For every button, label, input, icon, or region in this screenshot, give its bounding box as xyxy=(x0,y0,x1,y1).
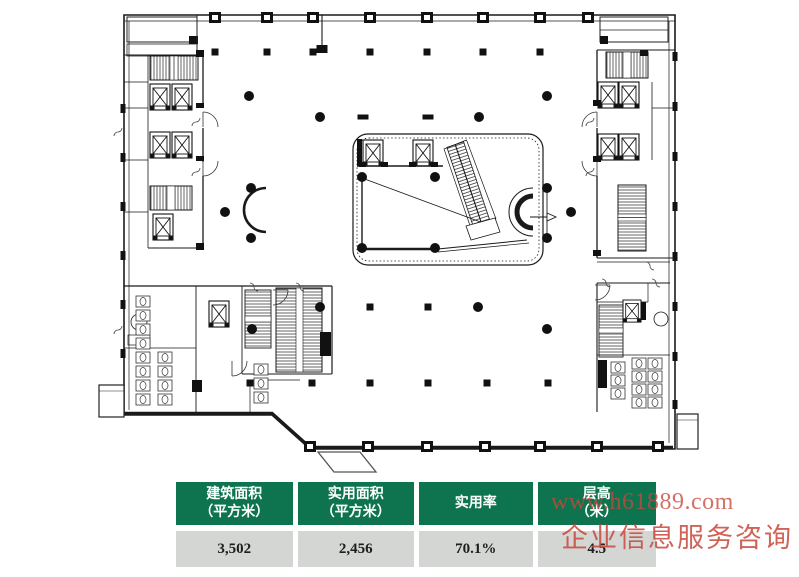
central-atrium xyxy=(353,134,556,265)
header-text: 实用率 xyxy=(455,495,497,513)
left-service-core xyxy=(114,50,266,334)
escalator-icon xyxy=(444,140,500,240)
bottom-right-core xyxy=(595,279,670,412)
header-cell-efficiency: 实用率 xyxy=(419,482,533,525)
watermark-text: 企业信息服务咨询 xyxy=(561,516,793,555)
stair-icon xyxy=(599,305,623,357)
header-text: 建筑面积 xyxy=(206,486,262,504)
header-cell-gross-area: 建筑面积 （平方米） xyxy=(176,482,293,525)
right-annex xyxy=(677,414,698,449)
elevator-icon xyxy=(623,300,641,322)
door-arc xyxy=(244,188,266,232)
elevator-icon xyxy=(209,301,229,327)
building-outline xyxy=(124,15,675,449)
elevator-icon xyxy=(150,84,192,240)
header-text: （平方米） xyxy=(321,504,391,522)
header-text: 实用面积 xyxy=(328,486,384,504)
value-gross-area: 3,502 xyxy=(176,531,293,567)
stair-icon xyxy=(150,56,198,80)
left-annex xyxy=(99,385,124,417)
right-service-core xyxy=(582,50,675,270)
toilet-stalls xyxy=(611,358,662,408)
entrance-canopy xyxy=(318,452,376,472)
elevator-icon xyxy=(363,140,433,166)
watermark-url: www.h61889.com xyxy=(551,489,734,516)
perimeter-columns xyxy=(121,12,678,452)
value-efficiency: 70.1% xyxy=(419,531,533,567)
stair-icon xyxy=(150,186,192,210)
bottom-left-core xyxy=(124,283,332,413)
basin-icon xyxy=(654,312,668,326)
header-text: （平方米） xyxy=(199,504,269,522)
header-cell-usable-area: 实用面积 （平方米） xyxy=(298,482,415,525)
stair-icon xyxy=(618,185,646,251)
value-usable-area: 2,456 xyxy=(298,531,415,567)
exit-arrow-icon xyxy=(509,186,556,238)
elevator-icon xyxy=(598,82,639,160)
